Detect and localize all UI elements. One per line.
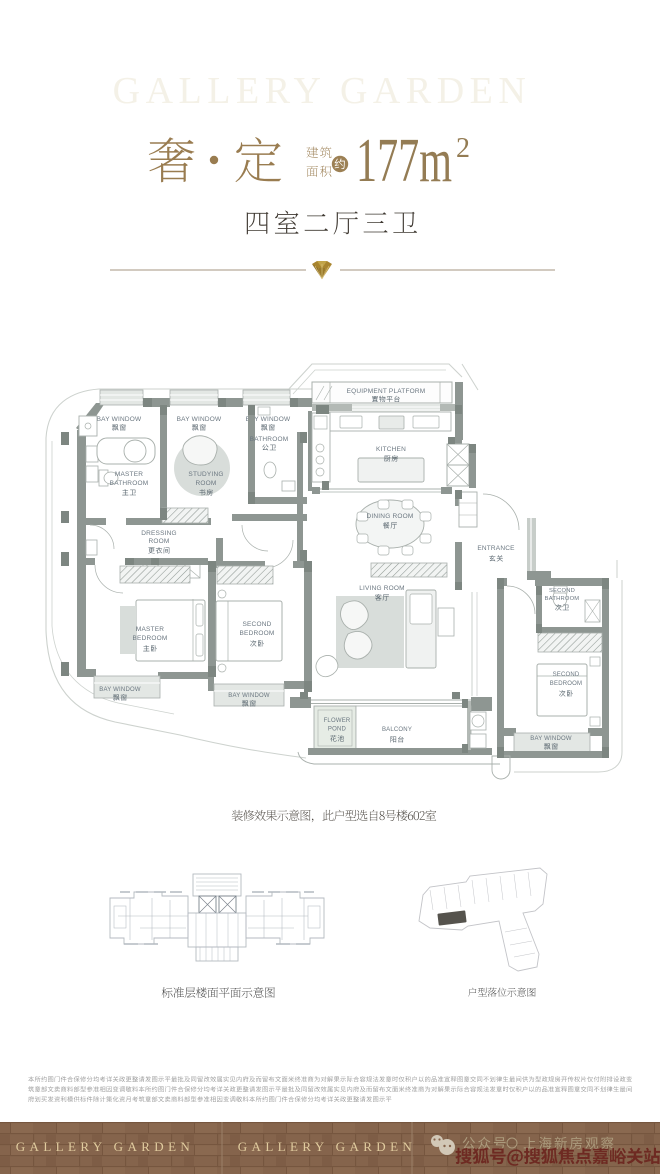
svg-text:2: 2 [456,133,470,164]
svg-text:SECOND: SECOND [242,621,271,628]
svg-text:BAY WINDOW: BAY WINDOW [530,736,572,742]
svg-text:GALLERY GARDEN: GALLERY GARDEN [113,70,532,112]
svg-text:SECOND: SECOND [553,672,580,678]
svg-text:BEDROOM: BEDROOM [550,681,582,687]
svg-text:DRESSING: DRESSING [141,530,177,537]
svg-text:KITCHEN: KITCHEN [376,446,406,453]
svg-text:BAY WINDOW: BAY WINDOW [99,687,141,693]
svg-text:BAY WINDOW: BAY WINDOW [228,693,270,699]
svg-text:EQUIPMENT PLATFORM: EQUIPMENT PLATFORM [347,388,426,395]
svg-text:FLOWER: FLOWER [324,718,351,724]
svg-text:ROOM: ROOM [148,538,169,545]
svg-text:POND: POND [328,727,347,733]
svg-text:ENTRANCE: ENTRANCE [477,545,515,552]
svg-text:GALLERY GARDEN: GALLERY GARDEN [16,1139,194,1154]
svg-text:MASTER: MASTER [136,626,164,633]
svg-text:BALCONY: BALCONY [382,727,412,733]
svg-text:BAY WINDOW: BAY WINDOW [97,416,142,423]
svg-text:BATHROOM: BATHROOM [110,480,149,487]
svg-text:SECOND: SECOND [549,588,575,594]
svg-text:BEDROOM: BEDROOM [133,635,168,642]
svg-text:BAY WINDOW: BAY WINDOW [177,416,222,423]
svg-text:BATHROOM: BATHROOM [545,596,580,602]
svg-text:STUDYING: STUDYING [188,471,223,478]
svg-text:MASTER: MASTER [115,471,143,478]
svg-text:ROOM: ROOM [195,480,216,487]
svg-text:GALLERY GARDEN: GALLERY GARDEN [238,1139,416,1154]
svg-text:177m: 177m [356,127,452,195]
svg-text:BATHROOM: BATHROOM [250,436,289,443]
svg-text:LIVING ROOM: LIVING ROOM [359,585,405,592]
svg-text:BEDROOM: BEDROOM [240,630,275,637]
svg-text:DINING ROOM: DINING ROOM [367,513,414,520]
